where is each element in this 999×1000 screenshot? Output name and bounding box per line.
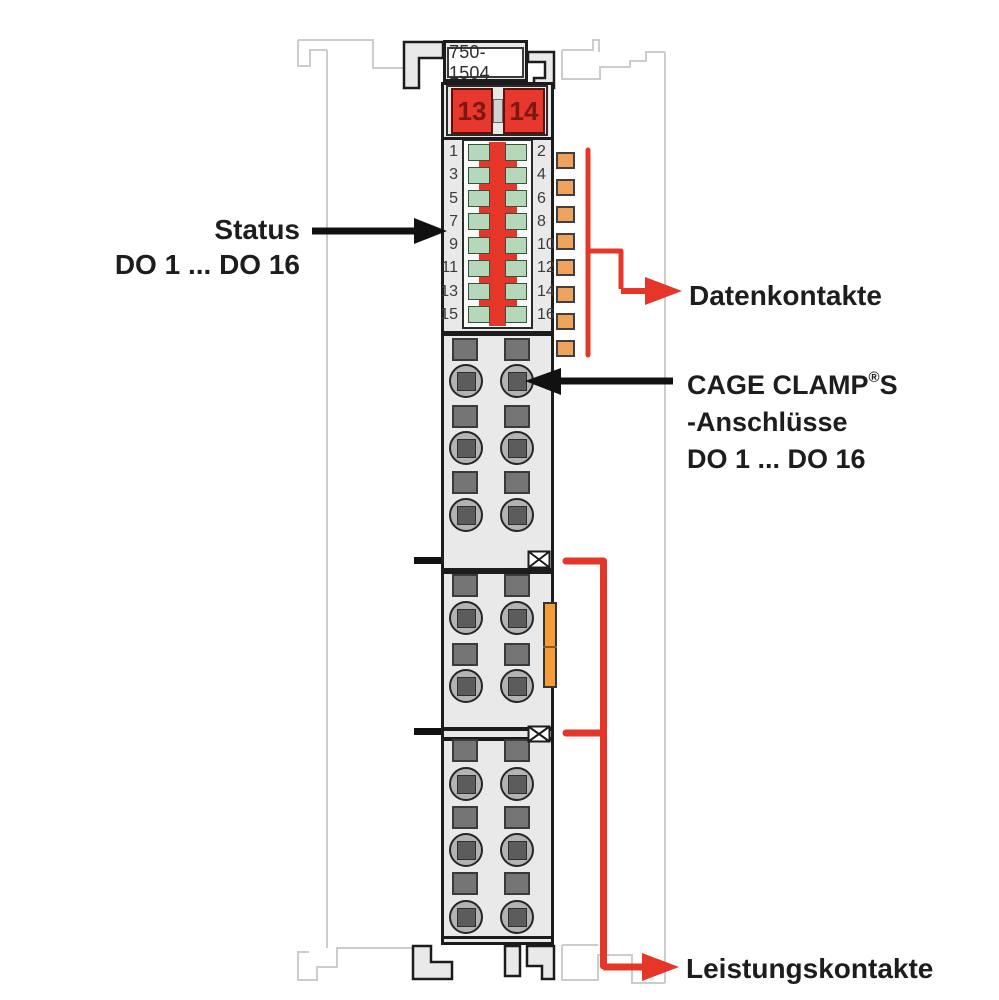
led-number: 8 xyxy=(537,213,555,231)
actuation-opening xyxy=(452,872,478,895)
data-contact xyxy=(556,206,575,223)
clamp-terminal xyxy=(500,364,534,398)
wire-opening xyxy=(508,609,527,628)
wire-opening xyxy=(457,841,476,860)
power-contacts-label: Leistungskontakte xyxy=(686,951,933,986)
led-indicator xyxy=(468,237,490,254)
status-range: DO 1 ... DO 16 xyxy=(60,247,300,282)
actuation-opening xyxy=(504,405,530,428)
led-number: 10 xyxy=(537,236,555,254)
led-indicator xyxy=(505,167,527,184)
data-contacts-label: Datenkontakte xyxy=(689,278,882,313)
actuation-opening xyxy=(504,872,530,895)
led-indicator xyxy=(468,213,490,230)
actuation-opening xyxy=(452,643,478,666)
section-divider xyxy=(441,727,554,731)
data-contact xyxy=(556,340,575,357)
clamp-terminal xyxy=(500,431,534,465)
wire-opening xyxy=(508,439,527,458)
jumper-button-connector xyxy=(493,99,503,123)
actuation-opening xyxy=(504,574,530,597)
led-number: 2 xyxy=(537,143,555,161)
led-number: 6 xyxy=(537,190,555,208)
led-number: 3 xyxy=(440,166,458,184)
clamp-terminal xyxy=(449,900,483,934)
led-indicator xyxy=(468,283,490,300)
led-number: 7 xyxy=(440,213,458,231)
right-neighbor-bottom-outline xyxy=(562,945,665,983)
data-contact xyxy=(556,152,575,169)
led-indicator xyxy=(505,213,527,230)
wire-opening xyxy=(508,677,527,696)
led-number: 15 xyxy=(440,306,458,324)
led-number: 9 xyxy=(440,236,458,254)
led-indicator xyxy=(505,237,527,254)
led-indicator xyxy=(468,190,490,207)
foot-right-step xyxy=(527,946,554,979)
led-indicator xyxy=(505,260,527,277)
wire-opening xyxy=(508,775,527,794)
part-number-label: 750-1504 xyxy=(447,47,524,78)
wire-opening xyxy=(508,908,527,927)
release-latch-split xyxy=(543,646,557,648)
right-neighbor-top-outline xyxy=(562,40,599,52)
wire-opening xyxy=(457,677,476,696)
foot-left-hook xyxy=(413,946,452,979)
clamp-terminal xyxy=(500,669,534,703)
cage-clamp-brand: CAGE CLAMP xyxy=(687,370,869,400)
clamp-terminal xyxy=(449,833,483,867)
led-indicator xyxy=(468,167,490,184)
actuation-opening xyxy=(452,739,478,762)
right-neighbor-step-outline xyxy=(562,50,665,79)
cage-clamp-label: CAGE CLAMP®S -Anschlüsse DO 1 ... DO 16 xyxy=(687,361,898,478)
wire-opening xyxy=(457,775,476,794)
actuation-opening xyxy=(452,338,478,361)
wire-opening xyxy=(457,908,476,927)
actuation-opening xyxy=(452,574,478,597)
led-number: 12 xyxy=(537,259,555,277)
led-indicator xyxy=(468,260,490,277)
clamp-terminal xyxy=(500,767,534,801)
clamp-terminal xyxy=(500,498,534,532)
led-indicator xyxy=(505,283,527,300)
cage-clamp-suffix: S xyxy=(880,370,898,400)
section-divider xyxy=(443,936,552,939)
status-title: Status xyxy=(60,212,300,247)
jumper-button-14: 14 xyxy=(503,88,545,134)
data-contact xyxy=(556,259,575,276)
clamp-terminal xyxy=(449,767,483,801)
cage-clamp-line3: DO 1 ... DO 16 xyxy=(687,441,898,478)
led-indicator xyxy=(505,306,527,323)
wire-opening xyxy=(457,439,476,458)
data-contact xyxy=(556,179,575,196)
clamp-terminal xyxy=(500,900,534,934)
led-number: 5 xyxy=(440,190,458,208)
jumper-button-13: 13 xyxy=(451,88,493,134)
actuation-opening xyxy=(504,806,530,829)
registered-trademark-icon: ® xyxy=(869,369,880,386)
wire-opening xyxy=(508,841,527,860)
led-number: 11 xyxy=(440,259,458,277)
wire-opening xyxy=(457,506,476,525)
section-divider xyxy=(441,137,554,140)
actuation-opening xyxy=(452,471,478,494)
clamp-terminal xyxy=(500,833,534,867)
led-indicator xyxy=(468,144,490,161)
data-contact xyxy=(556,286,575,303)
led-number: 4 xyxy=(537,166,555,184)
actuation-opening xyxy=(504,338,530,361)
cage-clamp-line1: CAGE CLAMP®S xyxy=(687,361,898,404)
led-number: 16 xyxy=(537,306,555,324)
cap-left-hook xyxy=(404,42,443,88)
wire-opening xyxy=(457,372,476,391)
data-contact xyxy=(556,313,575,330)
wire-opening xyxy=(508,372,527,391)
clamp-terminal xyxy=(500,601,534,635)
clamp-terminal xyxy=(449,431,483,465)
actuation-opening xyxy=(504,643,530,666)
led-number: 1 xyxy=(440,143,458,161)
clamp-terminal xyxy=(449,669,483,703)
actuation-opening xyxy=(504,471,530,494)
wire-opening xyxy=(508,506,527,525)
actuation-opening xyxy=(504,739,530,762)
foot-center xyxy=(505,946,520,976)
actuation-opening xyxy=(452,405,478,428)
data-contact xyxy=(556,233,575,250)
clamp-terminal xyxy=(449,364,483,398)
wire-opening xyxy=(457,609,476,628)
led-number: 14 xyxy=(537,283,555,301)
release-latch xyxy=(543,602,557,688)
left-neighbor-hook-outline xyxy=(298,40,327,66)
left-neighbor-top-outline xyxy=(298,40,410,68)
status-label: Status DO 1 ... DO 16 xyxy=(60,212,300,282)
actuation-opening xyxy=(452,806,478,829)
cage-clamp-line2: -Anschlüsse xyxy=(687,404,898,441)
led-number: 13 xyxy=(440,283,458,301)
clamp-terminal xyxy=(449,601,483,635)
left-neighbor-bottom-outline xyxy=(298,948,413,980)
clamp-terminal xyxy=(449,498,483,532)
led-indicator xyxy=(505,190,527,207)
section-divider xyxy=(441,331,554,336)
io-module-diagram: 750-1504 13 14 1 3 5 7 9 11 13 15 2 4 6 … xyxy=(0,0,999,1000)
led-indicator xyxy=(505,144,527,161)
led-indicator xyxy=(468,306,490,323)
